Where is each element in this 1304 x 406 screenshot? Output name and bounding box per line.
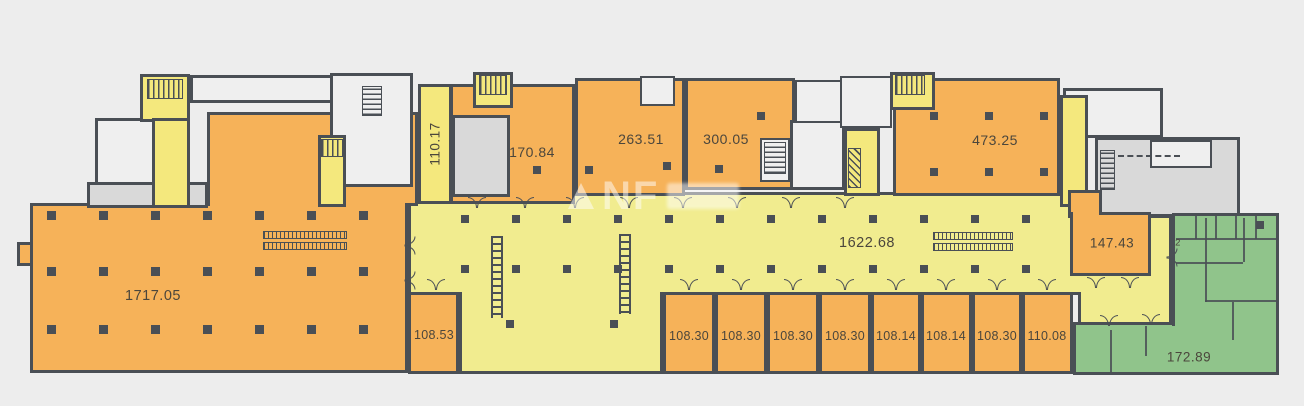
door-leaf [427, 279, 436, 290]
room-area-label: 147.43 [1090, 236, 1134, 251]
column [255, 325, 264, 334]
column [47, 325, 56, 334]
column [757, 112, 765, 120]
room-area-label: 110.17 [428, 122, 443, 165]
column [512, 215, 520, 223]
column [971, 265, 979, 273]
column [930, 168, 938, 176]
column [610, 320, 618, 328]
door-leaf [1038, 279, 1047, 290]
door-arc-icon [1142, 314, 1160, 325]
watermark-logo-icon [568, 183, 594, 209]
room-area-label: 263.51 [618, 131, 664, 147]
watermark-badge [667, 183, 739, 209]
door-leaf [1109, 315, 1118, 326]
room-area-label: 108.30 [825, 329, 865, 343]
column [818, 215, 826, 223]
room-area-label: 108.53 [414, 328, 454, 342]
column [920, 215, 928, 223]
room-area-label: 108.30 [977, 329, 1017, 343]
door-leaf [896, 279, 905, 290]
door-arc-icon [732, 279, 750, 290]
service-block-in-170 [452, 115, 510, 197]
column [1040, 112, 1048, 120]
column [767, 215, 775, 223]
column [99, 267, 108, 276]
door-leaf [1151, 314, 1160, 325]
door-leaf [782, 197, 791, 208]
service-room-right [1150, 140, 1212, 168]
door-arc-icon [427, 279, 445, 290]
room-area-label: 170.84 [509, 144, 555, 160]
room-area-label: 110.08 [1027, 329, 1066, 343]
column [151, 325, 160, 334]
room-area-label: 1622.68 [839, 235, 895, 251]
column [665, 265, 673, 273]
escalator-band [263, 242, 347, 250]
column [359, 267, 368, 276]
column [1256, 221, 1264, 229]
column [359, 325, 368, 334]
door-leaf [988, 279, 997, 290]
door-leaf [1121, 277, 1130, 288]
column [203, 211, 212, 220]
door-leaf [732, 279, 741, 290]
room-area-label: 473.25 [972, 132, 1018, 148]
door-leaf [845, 279, 854, 290]
door-leaf [1130, 277, 1139, 288]
service-corridor-topleft [190, 75, 338, 103]
stairs-icon [147, 79, 183, 99]
door-arc-icon [405, 272, 416, 290]
column [255, 211, 264, 220]
inner-wall [1205, 218, 1207, 302]
door-leaf [784, 279, 793, 290]
column [533, 166, 541, 174]
door-arc-icon [405, 237, 416, 255]
escalator-icon [263, 231, 347, 250]
door-arc-icon [680, 279, 698, 290]
door-arc-icon [1100, 315, 1118, 326]
door-leaf [680, 279, 689, 290]
column [716, 215, 724, 223]
door-leaf [405, 246, 416, 255]
column [767, 265, 775, 273]
column [716, 265, 724, 273]
column [99, 211, 108, 220]
door-leaf [525, 197, 534, 208]
column [563, 265, 571, 273]
ladder-icon [619, 234, 631, 314]
wall-notch [17, 242, 33, 266]
door-leaf [405, 281, 416, 290]
room-172-89-ext[interactable] [1073, 322, 1175, 375]
room-area-label: 1717.05 [125, 288, 181, 304]
column [930, 112, 938, 120]
inner-wall [1110, 330, 1112, 372]
room-area-label: 108.30 [773, 329, 813, 343]
column [47, 211, 56, 220]
stairs-icon [764, 142, 786, 174]
column [47, 267, 56, 276]
column [818, 265, 826, 273]
service-rooms-mid-top2 [840, 76, 892, 128]
door-leaf [937, 279, 946, 290]
room-area-label: 300.05 [703, 131, 749, 147]
column [512, 265, 520, 273]
stairs-icon [1100, 150, 1115, 190]
escalator-icon [933, 232, 1013, 251]
door-leaf [1087, 277, 1096, 288]
door-leaf [1096, 277, 1105, 288]
door-arc-icon [937, 279, 955, 290]
dashed-wall [1118, 155, 1180, 157]
room-area-label: 108.14 [876, 329, 916, 343]
inner-wall [1176, 238, 1276, 240]
room-1717-main[interactable] [30, 203, 408, 373]
door-leaf [793, 279, 802, 290]
door-leaf [477, 197, 486, 208]
column [307, 267, 316, 276]
door-arc-icon [1038, 279, 1056, 290]
column [307, 211, 316, 220]
room-area-label: 172.89 [1167, 350, 1211, 365]
column [461, 265, 469, 273]
door-arc-icon [516, 197, 534, 208]
door-leaf [741, 279, 750, 290]
door-leaf [1142, 314, 1151, 325]
shaft-icon [848, 148, 861, 188]
door-leaf [436, 279, 445, 290]
door-arc-icon [782, 197, 800, 208]
column [1022, 265, 1030, 273]
door-leaf [845, 197, 854, 208]
door-leaf [791, 197, 800, 208]
column [985, 168, 993, 176]
column [985, 112, 993, 120]
column [99, 325, 108, 334]
wall-seam-patch [210, 200, 405, 209]
door-arc-icon [468, 197, 486, 208]
stairs-icon [479, 75, 507, 95]
service-core-mid [790, 120, 845, 190]
door-leaf [1047, 279, 1056, 290]
door-leaf [468, 197, 477, 208]
column [506, 320, 514, 328]
inner-wall [1215, 215, 1217, 239]
column [920, 265, 928, 273]
door-arc-icon [1087, 277, 1105, 288]
inner-wall [1176, 262, 1243, 264]
door-arc-icon [1167, 249, 1178, 267]
door-leaf [946, 279, 955, 290]
service-rooms-mid-top [795, 80, 845, 123]
stairs-icon [362, 86, 382, 116]
column [1022, 215, 1030, 223]
watermark: NF [568, 176, 739, 216]
watermark-text: NF [602, 176, 659, 216]
column [665, 215, 673, 223]
door-leaf [997, 279, 1006, 290]
inner-wall [1205, 300, 1276, 302]
inner-wall [1235, 215, 1237, 239]
column [307, 325, 316, 334]
stairs-icon [895, 75, 925, 95]
column [359, 211, 368, 220]
door-leaf [516, 197, 525, 208]
column [203, 325, 212, 334]
wall-seam-patch [1073, 206, 1099, 216]
column [151, 211, 160, 220]
door-leaf [405, 237, 416, 246]
door-leaf [1167, 258, 1178, 267]
atrium-corridor-south[interactable] [459, 292, 663, 374]
column [1040, 168, 1048, 176]
door-leaf [1167, 249, 1178, 258]
room-area-label: 2 [1175, 238, 1181, 249]
escalator-band [933, 232, 1013, 240]
door-arc-icon [988, 279, 1006, 290]
column [715, 165, 723, 173]
column [869, 265, 877, 273]
room-area-label: 108.30 [721, 329, 761, 343]
stairs-icon [321, 139, 345, 157]
door-arc-icon [887, 279, 905, 290]
door-leaf [836, 279, 845, 290]
door-arc-icon [836, 197, 854, 208]
column [255, 267, 264, 276]
core-strip-topleft [152, 118, 190, 208]
ladder-icon [491, 236, 503, 318]
escalator-band [263, 231, 347, 239]
column [461, 215, 469, 223]
room-area-label: 108.30 [669, 329, 709, 343]
door-arc-icon [1121, 277, 1139, 288]
door-arc-icon [784, 279, 802, 290]
column [585, 166, 593, 174]
column [563, 215, 571, 223]
column [663, 162, 671, 170]
door-leaf [887, 279, 896, 290]
inner-wall [1243, 218, 1245, 262]
column [203, 267, 212, 276]
column [869, 215, 877, 223]
column [151, 267, 160, 276]
column [971, 215, 979, 223]
door-arc-icon [836, 279, 854, 290]
floor-plan-canvas: 1717.05 1622.68 110.17 170.84 263.51 300… [0, 0, 1304, 406]
room-area-label: 108.14 [926, 329, 966, 343]
inner-wall [1232, 302, 1234, 340]
door-leaf [405, 272, 416, 281]
escalator-band [933, 243, 1013, 251]
inner-wall [1195, 215, 1197, 239]
service-rooms-in-263 [640, 76, 675, 106]
door-leaf [689, 279, 698, 290]
inner-wall [1145, 326, 1147, 356]
door-leaf [1100, 315, 1109, 326]
door-leaf [836, 197, 845, 208]
